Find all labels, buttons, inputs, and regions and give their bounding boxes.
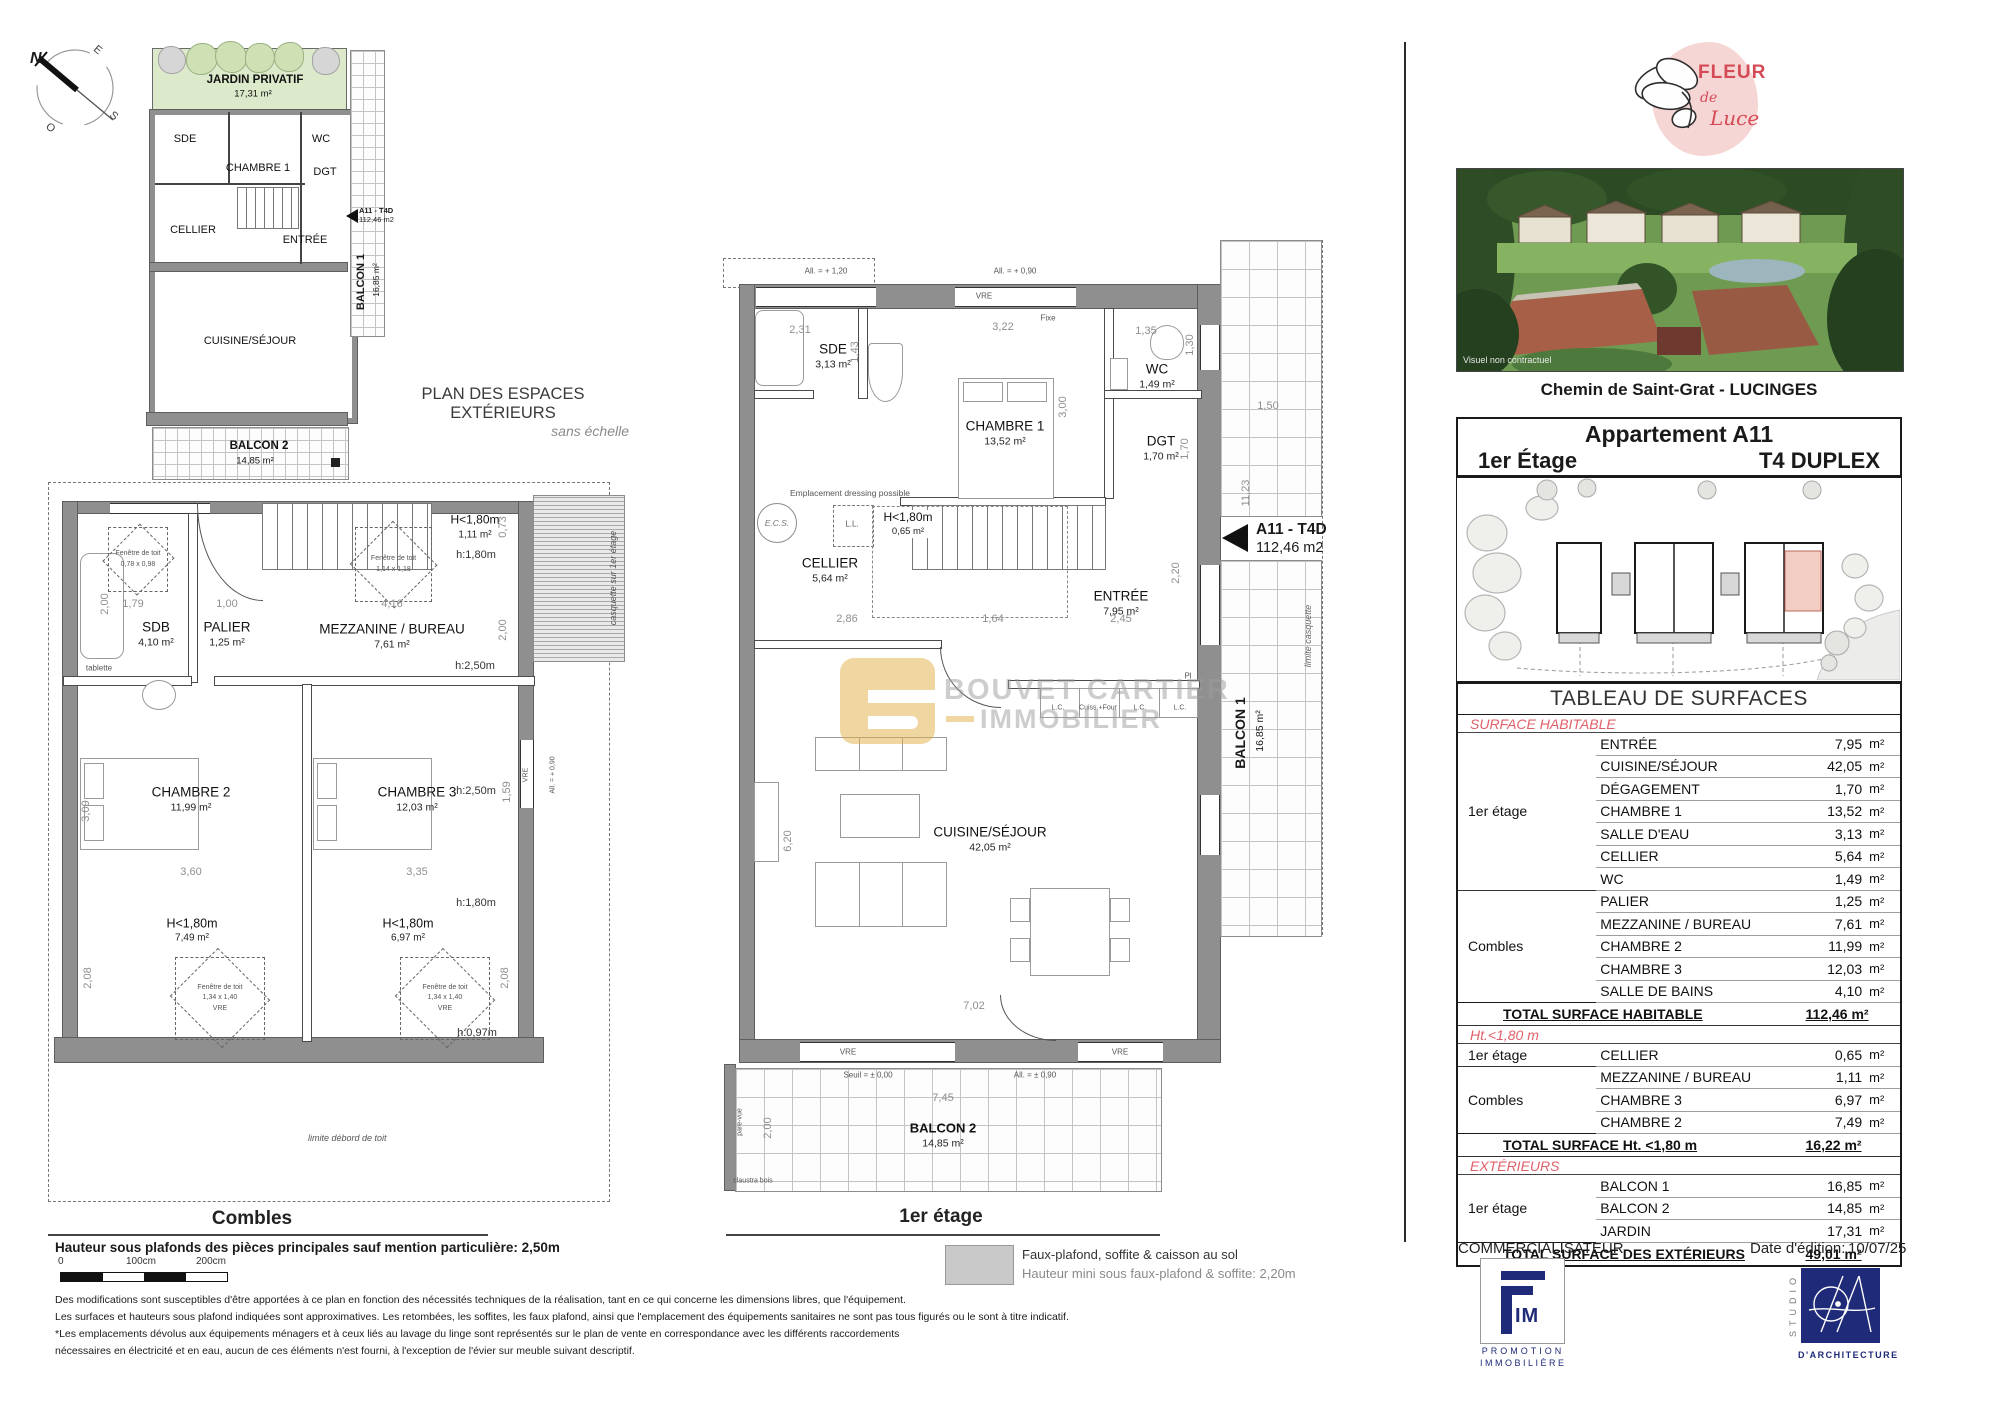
row-unit: m² — [1864, 823, 1901, 846]
scale-segment — [144, 1273, 186, 1281]
low-name: H<1,80m — [166, 915, 217, 931]
row-unit: m² — [1864, 868, 1901, 891]
row-value: 13,52 — [1790, 800, 1865, 823]
dim-label: 2,08 — [82, 967, 94, 988]
total-label: TOTAL SURFACE Ht. <1,80 m — [1457, 1134, 1790, 1157]
dim-label: 2,08 — [499, 967, 511, 988]
tablette-label: tablette — [86, 664, 112, 673]
shower — [755, 310, 804, 386]
mini-balcon2-label: BALCON 2 — [230, 440, 289, 452]
dim-label: 1,50 — [1257, 400, 1278, 412]
low-height-label: H<1,80m 6,97 m² — [382, 915, 433, 944]
room-label: SDE — [174, 133, 197, 145]
brand-word1: FLEUR — [1698, 62, 1766, 84]
roof-window-text: Fenêtre de toit 1,14 x 1,18 — [356, 528, 431, 601]
row-unit: m² — [1864, 1111, 1901, 1134]
row-unit: m² — [1864, 1175, 1901, 1198]
row-label: SALLE D'EAU — [1596, 823, 1789, 846]
row-value: 1,49 — [1790, 868, 1865, 891]
row-label: WC — [1596, 868, 1789, 891]
combles-wall — [63, 502, 77, 1042]
roof-window-line: 1,14 x 1,18 — [376, 565, 411, 576]
dim-label: 2,00 — [99, 593, 111, 614]
logo-slot — [868, 716, 918, 729]
fim-glyph-horizontal — [1512, 1286, 1533, 1295]
roof-window-line: Fenêtre de toit — [197, 983, 242, 994]
room-label: CELLIER 5,64 m² — [802, 554, 858, 585]
roof-window-line: VRE — [213, 1004, 227, 1015]
room-label: CHAMBRE 1 — [226, 162, 290, 174]
dim-label: 1,00 — [216, 598, 237, 610]
roof-window-text: Fenêtre de toit 0,78 x 0,98 — [109, 528, 167, 591]
etage-window — [1200, 795, 1220, 855]
watermark-line2: IMMOBILIER — [980, 704, 1162, 735]
room-label: CUISINE/SÉJOUR — [204, 335, 296, 347]
sideboard — [754, 782, 779, 862]
row-value: 4,10 — [1790, 980, 1865, 1003]
section-header: EXTÉRIEURS — [1457, 1157, 1901, 1175]
window-sill-label: All. = ± 0,90 — [1014, 1071, 1056, 1080]
row-value: 6,97 — [1790, 1089, 1865, 1112]
dim-label: 3,60 — [180, 866, 201, 878]
row-value: 17,31 — [1790, 1220, 1865, 1243]
roof-window: Fenêtre de toit 1,34 x 1,40 VRE — [175, 957, 265, 1040]
scale-tick-label: 100cm — [126, 1256, 156, 1267]
unit-label: A11 - T4D 112,46 m2 — [1256, 521, 1327, 557]
fim-logo: IM — [1480, 1258, 1565, 1344]
fim-glyph-bar — [1501, 1271, 1545, 1280]
group-label: Combles — [1457, 890, 1596, 1003]
dim-label: 2,31 — [789, 324, 810, 336]
room-name: CHAMBRE 1 — [966, 417, 1045, 435]
row-label: CUISINE/SÉJOUR — [1596, 755, 1789, 778]
claustra-label: claustra bois — [733, 1178, 772, 1185]
room-area: 13,52 m² — [966, 435, 1045, 449]
site-plan-art — [1457, 478, 1900, 680]
title-rule — [48, 1234, 488, 1236]
window-label: Fixe — [1040, 314, 1055, 323]
window-label: VRE — [976, 292, 992, 301]
roof-window-line: Fenêtre de toit — [115, 549, 160, 560]
row-label: CELLIER — [1596, 1044, 1789, 1067]
room-label: DGT — [313, 166, 336, 178]
total-value: 112,46 m² — [1790, 1003, 1901, 1026]
row-unit: m² — [1864, 845, 1901, 868]
balcon2-wall — [725, 1065, 735, 1190]
unit-arrow-icon — [1222, 524, 1248, 552]
scale-segment — [186, 1273, 228, 1281]
low-area: 7,49 m² — [166, 932, 217, 945]
exterior-caption: PLAN DES ESPACES EXTÉRIEURS sans échelle — [373, 385, 633, 439]
fleur-de-luce-logo: FLEUR de Luce — [1622, 38, 1762, 160]
window-label: VRE — [840, 1048, 856, 1057]
balcon-area: 14,85 m² — [910, 1138, 976, 1152]
etage-window — [800, 1042, 955, 1062]
row-unit: m² — [1864, 958, 1901, 981]
room-name: CUISINE/SÉJOUR — [933, 823, 1046, 841]
total-label: TOTAL SURFACE HABITABLE — [1457, 1003, 1790, 1026]
footnote: Des modifications sont susceptibles d'êt… — [55, 1294, 906, 1306]
room-label: SDE 3,13 m² — [815, 340, 851, 371]
sofa-divider — [902, 863, 903, 926]
window-label: VRE — [1112, 1048, 1128, 1057]
unit-subrow: 1er Étage T4 DUPLEX — [1456, 448, 1902, 474]
etage-wall — [754, 640, 942, 649]
dim-label: 6,20 — [782, 830, 794, 851]
tree-icon — [215, 41, 247, 73]
dining-table — [1030, 888, 1110, 976]
balcon2-label: BALCON 2 14,85 m² — [910, 1121, 976, 1152]
row-label: CHAMBRE 2 — [1596, 935, 1789, 958]
height-label: h:1,80m — [456, 897, 496, 909]
balcon1-zone — [1220, 240, 1322, 517]
coffee-table — [840, 794, 920, 838]
room-label: MEZZANINE / BUREAU 7,61 m² — [319, 620, 465, 651]
footnote: nécessaires en électricité et en eau, au… — [55, 1345, 635, 1357]
mini-plan-stairs — [237, 187, 299, 229]
scale-tick-label: 200cm — [196, 1256, 226, 1267]
row-label: BALCON 2 — [1596, 1197, 1789, 1220]
group-label: 1er étage — [1457, 1044, 1596, 1067]
room-label: CUISINE/SÉJOUR 42,05 m² — [933, 823, 1046, 854]
screen-label: pare-vue — [737, 1108, 744, 1136]
dressing-note: Emplacement dressing possible — [790, 488, 910, 498]
room-label: CELLIER — [170, 224, 216, 236]
height-label: h:0,97m — [457, 1027, 497, 1039]
etage-window — [955, 287, 1076, 307]
exterior-caption-title: PLAN DES ESPACES EXTÉRIEURS — [373, 385, 633, 423]
brand-word2: de — [1700, 90, 1717, 106]
row-label: SALLE DE BAINS — [1596, 980, 1789, 1003]
dim-label: 1,70 — [1179, 438, 1191, 459]
height-label: h:1,80m — [456, 549, 496, 561]
fim-letters: IM — [1515, 1305, 1539, 1328]
dim-label: 2,86 — [836, 613, 857, 625]
window-label: VRE — [523, 768, 530, 782]
roof-window-text: Fenêtre de toit 1,34 x 1,40 VRE — [176, 958, 264, 1039]
row-label: CHAMBRE 2 — [1596, 1111, 1789, 1134]
group-label: 1er étage — [1457, 1175, 1596, 1243]
sofa — [815, 862, 947, 927]
room-label: DGT 1,70 m² — [1143, 432, 1179, 463]
dim-label: 4,16 — [381, 598, 402, 610]
etage-wall — [1104, 308, 1114, 499]
dim-label: 3,09 — [80, 800, 92, 821]
group-label: 1er étage — [1457, 733, 1596, 891]
window-sill-label: All. = + 0,90 — [994, 267, 1037, 276]
jardin-area: 17,31 m² — [234, 89, 272, 100]
room-area: 3,13 m² — [815, 358, 851, 372]
room-area: 1,25 m² — [203, 636, 250, 650]
window-sill-label: All. = + 1,20 — [805, 267, 848, 276]
room-name: ENTRÉE — [1094, 587, 1149, 605]
roof-window: Fenêtre de toit 1,14 x 1,18 — [355, 527, 432, 602]
chair — [1010, 898, 1030, 922]
room-name: PALIER — [203, 618, 250, 636]
low-name: H<1,80m — [382, 915, 433, 931]
table-title: TABLEAU DE SURFACES — [1457, 683, 1901, 715]
row-unit: m² — [1864, 1066, 1901, 1089]
roof-window-line: 1,34 x 1,40 — [428, 993, 463, 1004]
row-value: 42,05 — [1790, 755, 1865, 778]
studio-logo-art — [1801, 1268, 1880, 1343]
etage-window — [756, 287, 876, 307]
room-label: CHAMBRE 1 13,52 m² — [963, 416, 1048, 449]
dim-label: 1,59 — [501, 781, 513, 802]
panel-divider — [1404, 42, 1406, 1242]
row-unit: m² — [1864, 755, 1901, 778]
roof-window-line: 1,34 x 1,40 — [203, 993, 238, 1004]
legend-swatch — [945, 1245, 1014, 1285]
room-name: SDB — [138, 618, 174, 636]
plan-sheet: N E S O JARDIN PRIVATIF 17,31 m² SDE CHA… — [0, 0, 2000, 1413]
room-area: 7,61 m² — [319, 638, 465, 652]
roof-window-line: 0,78 x 0,98 — [121, 560, 156, 571]
height-label: h:2,50m — [456, 785, 496, 797]
row-value: 14,85 — [1790, 1197, 1865, 1220]
roof-window-line: Fenêtre de toit — [422, 983, 467, 994]
chair — [1010, 938, 1030, 962]
dim-label: 7,45 — [932, 1092, 953, 1104]
wc-sink — [1110, 358, 1128, 390]
row-unit: m² — [1864, 1044, 1901, 1067]
row-value: 12,03 — [1790, 958, 1865, 981]
row-unit: m² — [1864, 1089, 1901, 1112]
window-sill-label: All. = + 0,90 — [550, 756, 557, 793]
room-label: SDB 4,10 m² — [138, 618, 174, 649]
unit-area: 112,46 m2 — [359, 215, 394, 224]
combles-plan-title: Combles — [212, 1208, 292, 1230]
studio-sub-label: D'ARCHITECTURE — [1798, 1350, 1884, 1360]
tree-icon — [312, 47, 340, 75]
etage-window — [1200, 325, 1220, 370]
row-value: 1,70 — [1790, 778, 1865, 801]
row-label: MEZZANINE / BUREAU — [1596, 1066, 1789, 1089]
unit-code: A11 - T4D — [359, 206, 394, 215]
chair — [1110, 938, 1130, 962]
pillow — [1007, 382, 1047, 402]
row-label: ENTRÉE — [1596, 733, 1789, 756]
footnote: *Les emplacements dévolus aux équipement… — [55, 1328, 899, 1340]
section-header: Ht.<1,80 m — [1457, 1026, 1901, 1044]
row-unit: m² — [1864, 1220, 1901, 1243]
mini-balcon2-zone — [152, 427, 349, 480]
room-label: PALIER 1,25 m² — [203, 618, 250, 649]
balcon-name: BALCON 2 — [910, 1121, 976, 1138]
development-photo: Visuel non contractuel — [1456, 168, 1904, 372]
unit-code: A11 - T4D — [1256, 521, 1327, 540]
room-area: 4,10 m² — [138, 636, 174, 650]
etage-door — [1200, 565, 1220, 645]
room-name: WC — [1139, 360, 1175, 378]
footnote: Les surfaces et hauteurs sous plafond in… — [55, 1311, 1069, 1323]
awning-outline — [723, 258, 875, 288]
dim-label: 2,00 — [762, 1117, 774, 1138]
height-label: h:2,50m — [455, 660, 495, 672]
row-value: 1,25 — [1790, 890, 1865, 913]
studio-logo — [1801, 1268, 1880, 1343]
room-label: WC 1,49 m² — [1139, 360, 1175, 391]
roof-limit-label: limite débord de toit — [305, 1133, 390, 1143]
low-area: 6,97 m² — [382, 932, 433, 945]
address-caption: Chemin de Saint-Grat - LUCINGES — [1456, 380, 1902, 400]
combles-wall — [188, 513, 198, 683]
roof-window-line: Fenêtre de toit — [371, 554, 416, 565]
mini-plan-wall — [150, 263, 347, 271]
legend-line1: Faux-plafond, soffite & caisson au sol — [1022, 1247, 1238, 1262]
pillow — [317, 805, 337, 841]
room-area: 11,99 m² — [152, 801, 231, 815]
room-name: CELLIER — [802, 554, 858, 572]
limite-casquette-label: limite casquette — [1303, 605, 1313, 668]
unit-floor: 1er Étage — [1478, 448, 1577, 474]
studio-vertical-label: STUDIO — [1788, 1273, 1798, 1337]
row-unit: m² — [1864, 890, 1901, 913]
row-unit: m² — [1864, 733, 1901, 756]
low-height-label: H<1,80m 0,65 m² — [881, 510, 934, 538]
combles-wall — [55, 1038, 543, 1062]
unit-title: Appartement A11 — [1456, 421, 1902, 448]
low-area: 0,65 m² — [883, 526, 932, 538]
row-label: MEZZANINE / BUREAU — [1596, 913, 1789, 936]
group-label: Combles — [1457, 1066, 1596, 1134]
vanity — [868, 343, 903, 402]
room-label: ENTRÉE — [283, 234, 328, 246]
room-label: WC — [312, 133, 330, 145]
site-plan — [1456, 477, 1902, 682]
row-label: BALCON 1 — [1596, 1175, 1789, 1198]
row-label: CELLIER — [1596, 845, 1789, 868]
dim-label: 3,22 — [992, 321, 1013, 333]
exterior-caption-sub: sans échelle — [373, 423, 633, 439]
room-label: CHAMBRE 3 12,03 m² — [378, 783, 457, 814]
sofa-divider — [859, 863, 860, 926]
edition-date-value: 10/07/25 — [1848, 1240, 1906, 1257]
mini-plan-wall — [147, 413, 347, 425]
jardin-label: JARDIN PRIVATIF — [207, 74, 304, 86]
low-name: H<1,80m — [450, 513, 499, 529]
row-value: 7,61 — [1790, 913, 1865, 936]
dim-label: 3,35 — [406, 866, 427, 878]
low-name: H<1,80m — [883, 510, 932, 526]
watermark-line1: BOUVET CARTIER — [944, 674, 1230, 707]
surfaces-table: TABLEAU DE SURFACES SURFACE HABITABLE 1e… — [1456, 682, 1902, 1267]
photo-art — [1457, 169, 1903, 371]
room-area: 1,70 m² — [1143, 450, 1179, 464]
pillow — [963, 382, 1003, 402]
combles-wall — [302, 684, 312, 1042]
bouvet-cartier-logo-icon — [840, 658, 935, 744]
mini-balcon1-label: BALCON 1 — [355, 254, 367, 310]
dim-label: 2,00 — [497, 619, 509, 640]
chair — [1110, 898, 1130, 922]
total-value: 16,22 m² — [1790, 1134, 1901, 1157]
combles-wall — [63, 676, 192, 686]
mini-balcon1-area: 16,85 m² — [371, 263, 381, 297]
row-value: 3,13 — [1790, 823, 1865, 846]
fim-sub1: PROMOTION — [1480, 1346, 1566, 1356]
door-swing — [1000, 995, 1056, 1041]
room-area: 42,05 m² — [933, 841, 1046, 855]
dim-label: 0,73 — [497, 516, 509, 537]
dim-label: 1,64 — [982, 613, 1003, 625]
row-value: 16,85 — [1790, 1175, 1865, 1198]
row-value: 1,11 — [1790, 1066, 1865, 1089]
compass-icon — [25, 30, 120, 140]
sink — [142, 680, 176, 710]
scale-segment — [61, 1273, 103, 1281]
balcon1-area: 16,85 m² — [1254, 710, 1266, 751]
legend-line2: Hauteur mini sous faux-plafond & soffite… — [1022, 1266, 1296, 1281]
roof-window: Fenêtre de toit 0,78 x 0,98 — [108, 527, 168, 592]
title-rule — [726, 1234, 1160, 1236]
row-value: 0,65 — [1790, 1044, 1865, 1067]
section-header: SURFACE HABITABLE — [1457, 715, 1901, 733]
dim-label: 2,45 — [1110, 613, 1131, 625]
ceiling-height-note: Hauteur sous plafonds des pièces princip… — [55, 1240, 560, 1255]
fim-glyph-vertical — [1501, 1286, 1512, 1334]
row-value: 5,64 — [1790, 845, 1865, 868]
dim-label: 2,20 — [1170, 562, 1182, 583]
mini-unit-label: A11 - T4D 112,46 m2 — [359, 206, 394, 224]
row-label: JARDIN — [1596, 1220, 1789, 1243]
unit-area: 112,46 m2 — [1256, 540, 1327, 557]
watermark-dash — [946, 716, 974, 722]
row-unit: m² — [1864, 1197, 1901, 1220]
dim-label: 3,00 — [1057, 396, 1069, 417]
scale-segment — [103, 1273, 145, 1281]
ecs-tank: E.C.S. — [757, 503, 797, 543]
pillow — [317, 763, 337, 799]
scale-tick-label: 0 — [58, 1256, 64, 1267]
room-name: CHAMBRE 2 — [152, 783, 231, 801]
room-name: MEZZANINE / BUREAU — [319, 620, 465, 638]
row-unit: m² — [1864, 778, 1901, 801]
low-area: 1,11 m² — [450, 528, 499, 541]
row-unit: m² — [1864, 935, 1901, 958]
room-area: 12,03 m² — [378, 801, 457, 815]
mini-balcon2-area: 14,85 m² — [236, 456, 274, 467]
dim-label: 1,30 — [1184, 334, 1196, 355]
logo-slot — [868, 690, 935, 703]
threshold-label: Seuil = ± 0,00 — [843, 1071, 892, 1080]
row-value: 7,49 — [1790, 1111, 1865, 1134]
unit-type: T4 DUPLEX — [1759, 448, 1880, 474]
room-name: CHAMBRE 3 — [378, 783, 457, 801]
photo-disclaimer: Visuel non contractuel — [1463, 355, 1551, 365]
row-unit: m² — [1864, 980, 1901, 1003]
fim-sub2: IMMOBILIÈRE — [1480, 1358, 1566, 1368]
row-unit: m² — [1864, 800, 1901, 823]
room-area: 5,64 m² — [802, 572, 858, 586]
unit-arrow-icon — [346, 209, 358, 223]
row-label: CHAMBRE 3 — [1596, 958, 1789, 981]
brand-word3: Luce — [1710, 106, 1759, 130]
room-name: SDE — [815, 340, 851, 358]
room-label: CHAMBRE 2 11,99 m² — [152, 783, 231, 814]
combles-wall — [214, 676, 535, 686]
edition-date-label: Date d'édition: — [1750, 1240, 1845, 1257]
mini-plan-wall — [155, 183, 305, 185]
washer-label: L.L. — [845, 520, 858, 529]
plan-detail — [331, 458, 340, 467]
dim-label: 1,43 — [849, 341, 861, 362]
tree-icon — [274, 42, 304, 72]
row-value: 11,99 — [1790, 935, 1865, 958]
etage-wall — [754, 390, 814, 399]
etage-plan-title: 1er étage — [899, 1206, 982, 1228]
room-name: DGT — [1143, 432, 1179, 450]
